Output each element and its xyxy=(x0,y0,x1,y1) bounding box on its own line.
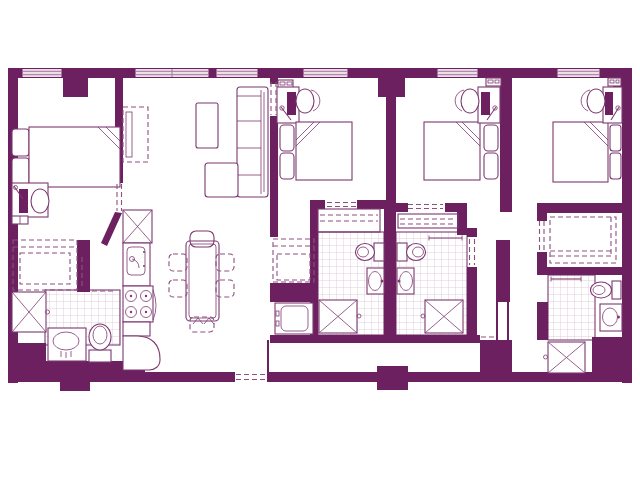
desk-chair xyxy=(587,89,605,113)
faucet xyxy=(381,280,384,283)
window xyxy=(303,69,348,77)
toilet xyxy=(407,244,426,261)
toilet xyxy=(89,324,111,350)
window xyxy=(22,69,62,77)
door-jamb xyxy=(496,302,498,340)
laptop xyxy=(481,92,490,115)
window xyxy=(216,69,258,77)
window xyxy=(135,69,209,77)
laptop xyxy=(19,189,28,213)
nightstand xyxy=(280,153,294,179)
wall-left xyxy=(8,78,18,383)
wall-pier-bedroom-2 xyxy=(378,78,405,97)
nightstand xyxy=(280,125,294,151)
wall-bedroom-2-3 xyxy=(386,97,396,205)
pillow xyxy=(12,158,29,185)
wall-bottom-mid xyxy=(145,372,235,382)
wall-pier-bedroom-1 xyxy=(63,78,88,97)
nightstand xyxy=(484,153,498,179)
wall-laundry xyxy=(270,283,318,302)
desk-chair xyxy=(31,189,49,213)
desk-chair xyxy=(296,89,314,113)
door-frame-corridor xyxy=(267,340,269,372)
wall-stub xyxy=(537,213,547,221)
pillow xyxy=(12,129,29,156)
window xyxy=(437,69,478,77)
floor-plan-drawing xyxy=(0,0,640,480)
sofa-chaise xyxy=(205,163,238,197)
toilet-tank xyxy=(89,350,111,362)
wall-bathroom-3-right xyxy=(467,267,477,343)
toilet-tank xyxy=(397,243,407,261)
nightstand xyxy=(610,153,621,179)
toilet xyxy=(591,282,612,298)
toilet xyxy=(356,244,375,261)
refrigerator xyxy=(123,107,148,162)
bathroom-4-tiles xyxy=(548,275,595,340)
wall-bathroom-4-left xyxy=(537,302,548,340)
faucet xyxy=(398,280,401,283)
floor-plan-page xyxy=(0,0,640,480)
wall-bathroom-center xyxy=(384,205,396,343)
sofa xyxy=(237,87,268,197)
wall-bedroom-2-left xyxy=(270,116,278,237)
wall-stub xyxy=(396,203,408,212)
coffee-table xyxy=(196,103,218,148)
door-jamb xyxy=(507,302,509,340)
wall-stub xyxy=(310,200,325,209)
window xyxy=(557,69,600,77)
nightstand xyxy=(610,125,621,151)
wall-bedroom-3-4 xyxy=(500,70,512,212)
entry-step xyxy=(60,378,90,391)
nightstand xyxy=(484,125,498,151)
laptop xyxy=(287,92,296,115)
toilet-tank xyxy=(374,243,384,261)
bed xyxy=(29,127,120,187)
wall-stub xyxy=(357,200,386,209)
wall-bathroom-bottom xyxy=(270,335,480,343)
wall-bathroom-4-top xyxy=(537,267,625,275)
desk-chair xyxy=(461,89,479,113)
dining-table xyxy=(186,241,219,321)
wall-pier-bottom xyxy=(377,366,408,390)
wall-stub xyxy=(537,252,547,267)
toilet-tank xyxy=(612,281,621,299)
dishwasher xyxy=(123,322,150,336)
wall-hall-right xyxy=(496,240,510,302)
bed xyxy=(553,122,608,182)
faucet xyxy=(617,316,620,319)
laptop xyxy=(605,92,613,115)
wall-closet-1 xyxy=(77,240,90,292)
bed xyxy=(424,122,480,180)
bed xyxy=(296,122,352,180)
wall-stub xyxy=(467,228,477,237)
wall-bedroom-4-bottom xyxy=(537,203,622,213)
